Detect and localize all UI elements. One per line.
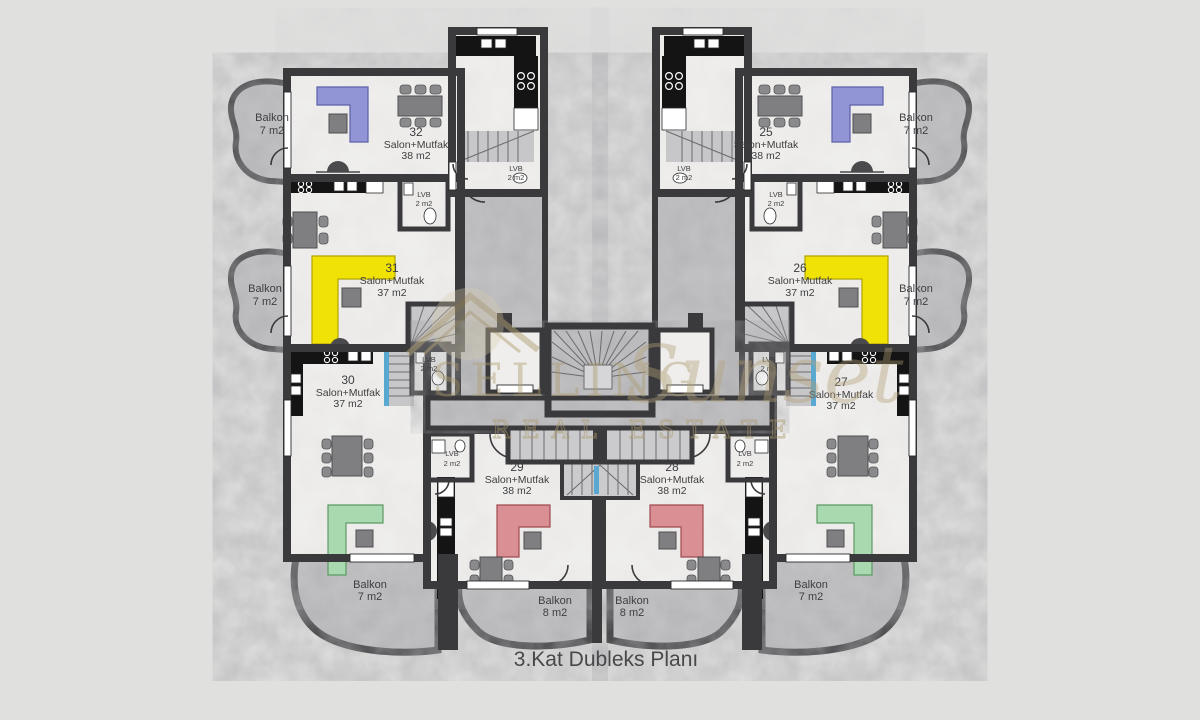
svg-text:8 m2: 8 m2 — [543, 607, 567, 619]
svg-text:2 m2: 2 m2 — [508, 173, 525, 182]
svg-text:38 m2: 38 m2 — [502, 485, 531, 497]
svg-text:Balkon: Balkon — [538, 595, 572, 607]
svg-text:37 m2: 37 m2 — [377, 287, 406, 299]
svg-text:26: 26 — [793, 261, 807, 275]
balcony-label-top-left: Balkon7 m2 — [255, 112, 289, 137]
svg-text:Balkon: Balkon — [255, 112, 289, 124]
svg-text:38 m2: 38 m2 — [401, 150, 430, 162]
svg-text:37 m2: 37 m2 — [333, 398, 362, 410]
svg-text:7 m2: 7 m2 — [260, 125, 284, 137]
svg-text:28: 28 — [665, 460, 679, 474]
svg-text:2 m2: 2 m2 — [416, 199, 433, 208]
floor-plan-drawing: 32Salon+Mutfak38 m2 25Salon+Mutfak38 m2 … — [0, 0, 1200, 720]
bottom-divider-wall — [592, 498, 602, 643]
svg-text:37 m2: 37 m2 — [785, 287, 814, 299]
svg-text:Balkon: Balkon — [615, 595, 649, 607]
watermark-script-text: Sunset — [625, 328, 904, 421]
svg-text:7 m2: 7 m2 — [799, 591, 823, 603]
wc-label-26: LVB2 m2 — [768, 190, 785, 208]
svg-text:7 m2: 7 m2 — [358, 591, 382, 603]
wc-label-32: LVB2 m2 — [508, 164, 525, 182]
svg-text:Balkon: Balkon — [899, 112, 933, 124]
core-stairs-lower — [562, 462, 638, 498]
svg-text:LVB: LVB — [769, 190, 783, 199]
svg-text:Balkon: Balkon — [899, 283, 933, 295]
svg-text:7 m2: 7 m2 — [904, 296, 928, 308]
balcony-label-bottom-center-left: Balkon8 m2 — [538, 595, 572, 619]
balcony-label-middle-right: Balkon7 m2 — [899, 283, 933, 308]
balcony-label-bottom-right: Balkon7 m2 — [794, 579, 828, 603]
svg-text:2 m2: 2 m2 — [768, 199, 785, 208]
svg-text:2 m2: 2 m2 — [676, 173, 693, 182]
svg-text:38 m2: 38 m2 — [751, 150, 780, 162]
svg-text:2 m2: 2 m2 — [444, 459, 461, 468]
svg-text:31: 31 — [385, 261, 399, 275]
svg-text:7 m2: 7 m2 — [904, 125, 928, 137]
svg-text:LVB: LVB — [677, 164, 691, 173]
wc-label-28: LVB2 m2 — [737, 449, 754, 468]
core-stair-glass — [594, 466, 599, 494]
svg-text:Balkon: Balkon — [794, 579, 828, 591]
wc-label-29: LVB2 m2 — [444, 449, 461, 468]
watermark-tagline-text: REAL ESTATE — [492, 416, 799, 444]
balcony-label-bottom-center-right: Balkon8 m2 — [615, 595, 649, 619]
svg-text:8 m2: 8 m2 — [620, 607, 644, 619]
svg-text:LVB: LVB — [445, 449, 459, 458]
svg-text:Salon+Mutfak: Salon+Mutfak — [768, 275, 833, 287]
svg-text:Salon+Mutfak: Salon+Mutfak — [360, 275, 425, 287]
floor-plan-page: 32Salon+Mutfak38 m2 25Salon+Mutfak38 m2 … — [0, 0, 1200, 720]
svg-text:32: 32 — [409, 125, 423, 139]
wc-label-31: LVB2 m2 — [416, 190, 433, 208]
balcony-label-middle-left: Balkon7 m2 — [248, 283, 282, 308]
balcony-label-top-right: Balkon7 m2 — [899, 112, 933, 137]
balcony-label-bottom-left: Balkon7 m2 — [353, 579, 387, 603]
svg-text:30: 30 — [341, 373, 355, 387]
svg-text:7 m2: 7 m2 — [253, 296, 277, 308]
svg-text:LVB: LVB — [509, 164, 523, 173]
wc-label-25: LVB2 m2 — [676, 164, 693, 182]
plan-title: 3.Kat Dubleks Planı — [514, 648, 698, 671]
svg-text:29: 29 — [510, 460, 524, 474]
svg-text:25: 25 — [759, 125, 773, 139]
svg-text:Balkon: Balkon — [353, 579, 387, 591]
svg-text:LVB: LVB — [738, 449, 752, 458]
svg-text:LVB: LVB — [417, 190, 431, 199]
svg-text:2 m2: 2 m2 — [737, 459, 754, 468]
svg-text:38 m2: 38 m2 — [657, 485, 686, 497]
svg-text:Balkon: Balkon — [248, 283, 282, 295]
